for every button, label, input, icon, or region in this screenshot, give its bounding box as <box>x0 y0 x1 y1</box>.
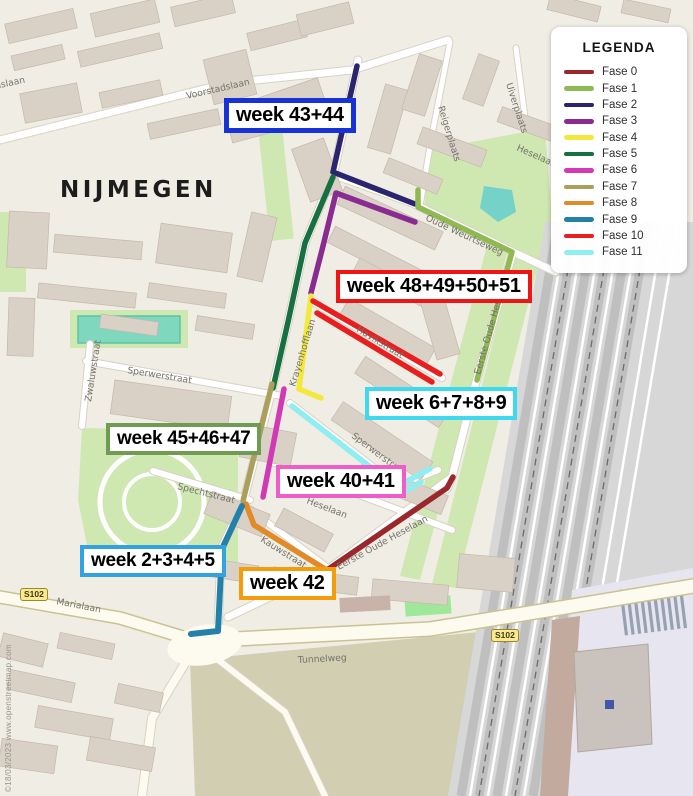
road-badge-s102: S102 <box>491 629 519 642</box>
legend-title: LEGENDA <box>551 40 687 55</box>
week-label-6-7-8-9: week 6+7+8+9 <box>365 387 517 420</box>
map-screenshot: Voorstadslaan Voorstadslaan Oude Weurtse… <box>0 0 693 796</box>
legend-item-label: Fase 10 <box>602 230 644 242</box>
legend-item-fase-0: Fase 0 <box>551 64 687 80</box>
legend-item-fase-1: Fase 1 <box>551 80 687 96</box>
legend-item-label: Fase 11 <box>602 246 643 258</box>
fase-7-swatch <box>564 185 594 190</box>
legend-item-fase-6: Fase 6 <box>551 162 687 178</box>
legend-item-label: Fase 3 <box>602 115 637 127</box>
station-marker <box>605 700 614 709</box>
watermark: ©18/03/2023 www.openstreetmap.com <box>4 644 13 792</box>
week-label-45-46-47: week 45+46+47 <box>106 423 261 455</box>
fase-2-swatch <box>564 103 594 108</box>
legend-item-label: Fase 7 <box>602 181 637 193</box>
week-label-40-41: week 40+41 <box>276 465 406 498</box>
legend-item-label: Fase 4 <box>602 132 637 144</box>
legend-item-label: Fase 1 <box>602 83 637 95</box>
fase-8-swatch <box>564 201 594 206</box>
legend-item-fase-10: Fase 10 <box>551 228 687 244</box>
fase-10-swatch <box>564 234 594 239</box>
week-label-48-49-50-51: week 48+49+50+51 <box>336 270 532 303</box>
week-label-42: week 42 <box>239 567 336 600</box>
fase-6-swatch <box>564 168 594 173</box>
week-label-43-44: week 43+44 <box>224 98 356 133</box>
fase-3-swatch <box>564 119 594 124</box>
road-badge-s102: S102 <box>20 588 48 601</box>
fase-11-swatch <box>564 250 594 255</box>
street-label: Heselaan <box>305 496 349 522</box>
legend-item-fase-8: Fase 8 <box>551 195 687 211</box>
legend-item-label: Fase 2 <box>602 99 637 111</box>
legend-item-label: Fase 6 <box>602 164 637 176</box>
fase-0-swatch <box>564 70 594 75</box>
fase-1-swatch <box>564 86 594 91</box>
legend-item-fase-2: Fase 2 <box>551 97 687 113</box>
legend-item-label: Fase 5 <box>602 148 637 160</box>
week-label-2-3-4-5: week 2+3+4+5 <box>80 545 226 577</box>
fase-4-swatch <box>564 135 594 140</box>
legend-item-fase-4: Fase 4 <box>551 130 687 146</box>
legend-item-fase-11: Fase 11 <box>551 244 687 260</box>
fase-9-swatch <box>564 217 594 222</box>
legend-item-label: Fase 0 <box>602 66 637 78</box>
legend: LEGENDA Fase 0 Fase 1 Fase 2 Fase 3 Fase… <box>551 27 687 273</box>
legend-item-fase-7: Fase 7 <box>551 179 687 195</box>
legend-item-fase-5: Fase 5 <box>551 146 687 162</box>
city-label: NIJMEGEN <box>60 177 217 203</box>
fase-5-swatch <box>564 152 594 157</box>
legend-item-label: Fase 8 <box>602 197 637 209</box>
legend-item-fase-3: Fase 3 <box>551 113 687 129</box>
legend-item-label: Fase 9 <box>602 214 637 226</box>
legend-item-fase-9: Fase 9 <box>551 211 687 227</box>
